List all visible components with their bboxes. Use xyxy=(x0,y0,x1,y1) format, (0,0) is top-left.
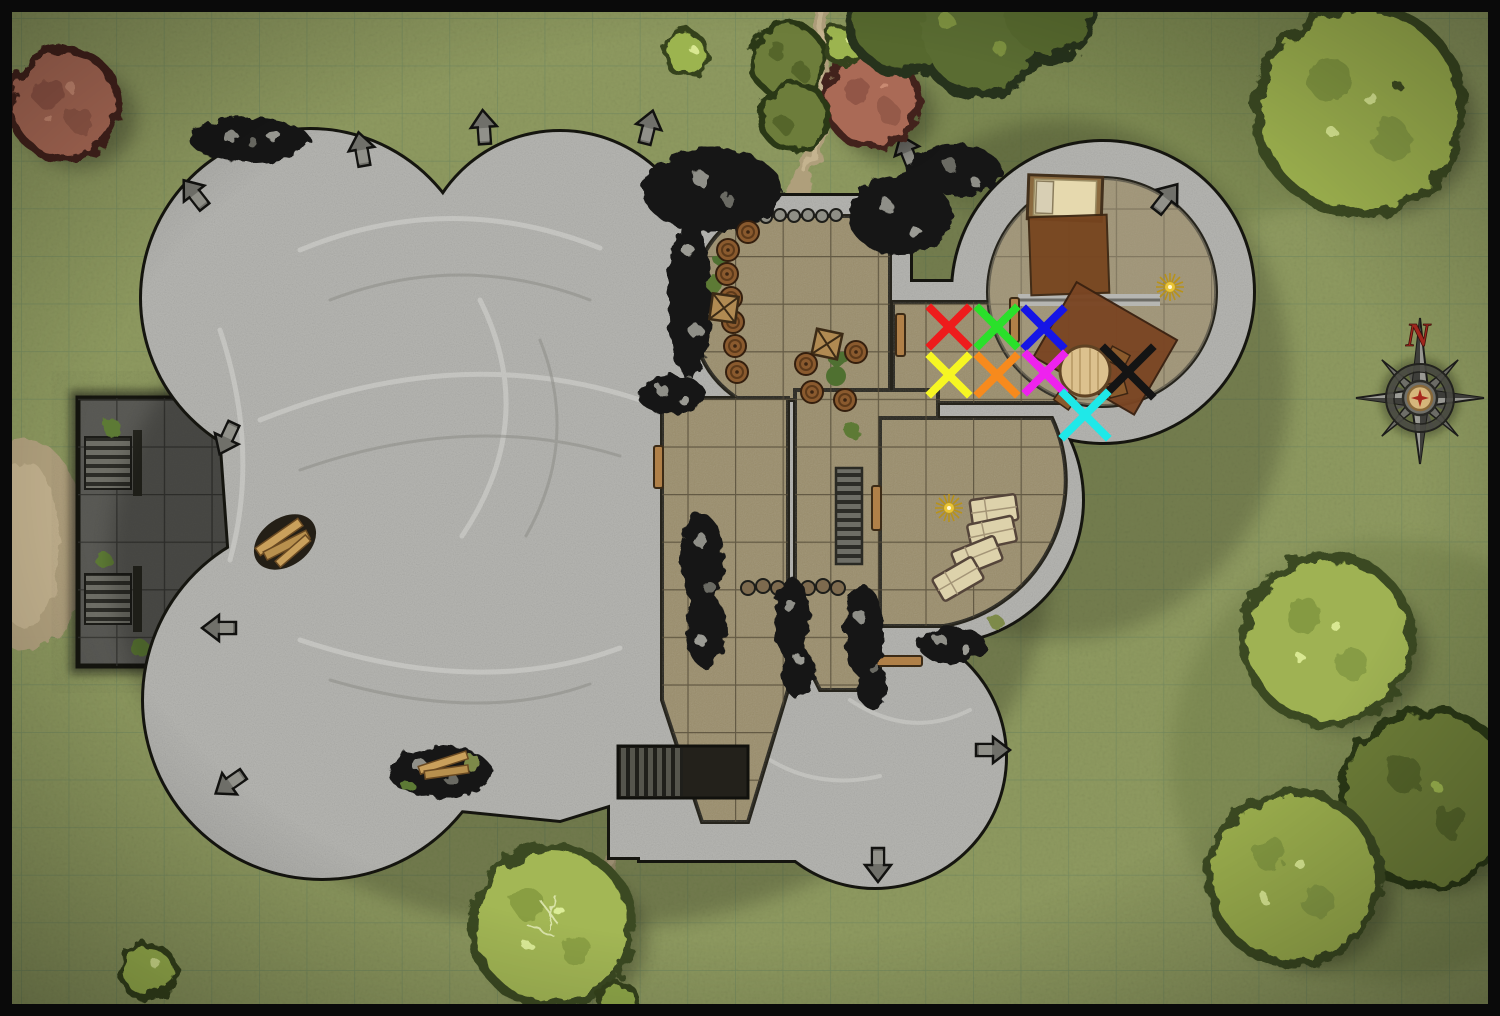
vignette xyxy=(0,0,1500,1016)
battle-map: N xyxy=(0,0,1500,1016)
map-canvas[interactable]: N xyxy=(0,0,1500,1016)
